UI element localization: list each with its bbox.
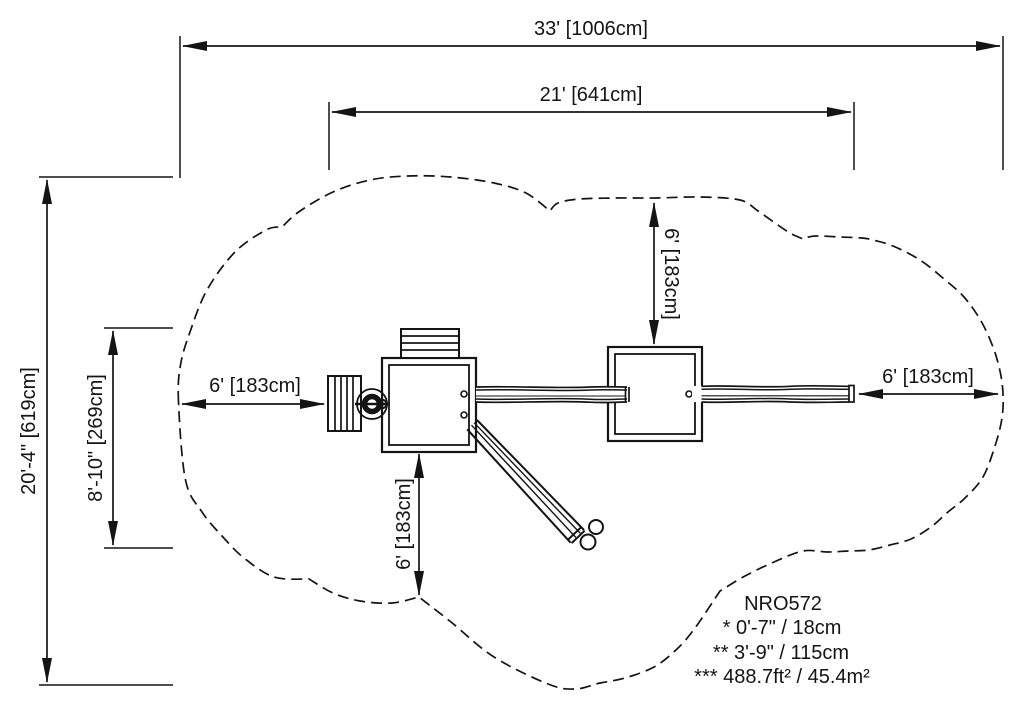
svg-text:33' [1006cm]: 33' [1006cm] [534, 18, 648, 40]
svg-text:8'-10" [269cm]: 8'-10" [269cm] [85, 374, 107, 502]
svg-text:20'-4" [619cm]: 20'-4" [619cm] [18, 367, 40, 495]
svg-text:*** 488.7ft² / 45.4m²: *** 488.7ft² / 45.4m² [694, 666, 870, 688]
svg-text:6' [183cm]: 6' [183cm] [882, 366, 974, 388]
svg-text:6' [183cm]: 6' [183cm] [393, 478, 415, 570]
svg-text:6' [183cm]: 6' [183cm] [209, 375, 301, 397]
svg-text:* 0'-7" / 18cm: * 0'-7" / 18cm [723, 617, 842, 639]
svg-text:** 3'-9" / 115cm: ** 3'-9" / 115cm [713, 642, 849, 664]
svg-text:21' [641cm]: 21' [641cm] [540, 84, 643, 106]
svg-text:NRO572: NRO572 [744, 593, 822, 615]
svg-text:6' [183cm]: 6' [183cm] [660, 228, 682, 320]
